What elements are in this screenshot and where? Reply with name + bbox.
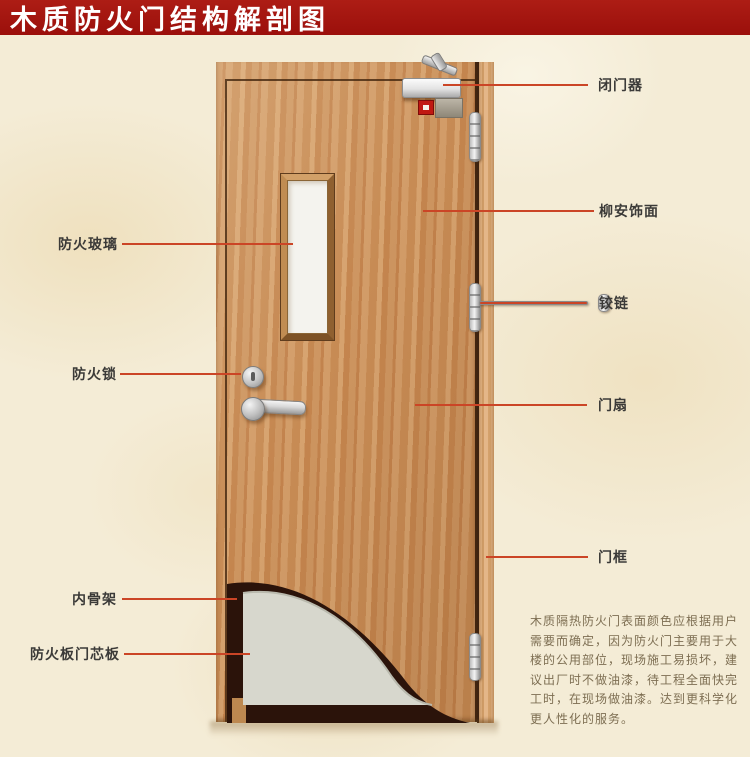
cutaway-section (216, 560, 478, 723)
title-banner: 木质防火门结构解剖图 (0, 0, 750, 35)
label-fire-board-core: 防火板门芯板 (20, 646, 120, 662)
red-label-plate-center (423, 105, 429, 110)
description-line: 楼的公用部位，现场施工易损坏，建 (530, 651, 748, 671)
description-line: 更人性化的服务。 (530, 710, 748, 730)
description-line: 需要而确定，因为防火门主要用于大 (530, 632, 748, 652)
label-door-leaf: 门扇 (598, 397, 628, 413)
door-handle-rosette (241, 397, 265, 421)
callout-line-lauan-veneer (423, 210, 594, 212)
door-shadow (210, 721, 498, 736)
hinge-middle (469, 283, 481, 332)
callout-line-fire-board-core (124, 653, 250, 655)
gray-label-plate (435, 98, 463, 118)
callout-line-door-closer (443, 84, 588, 86)
fire-door-diagram: 木质防火门结构解剖图 防火玻璃 防火锁 内骨架 防火板 (0, 0, 750, 757)
callout-line-inner-skeleton (122, 598, 237, 600)
door-frame (477, 62, 494, 723)
label-fire-lock: 防火锁 (17, 366, 117, 382)
callout-line-door-frame (486, 556, 588, 558)
description-paragraph: 木质隔热防火门表面颜色应根据用户 需要而确定，因为防火门主要用于大 楼的公用部位… (530, 612, 748, 729)
callout-line-fire-glass (122, 243, 293, 245)
keyhole-icon (251, 372, 255, 381)
description-line: 工时，在现场做油漆。达到更科学化 (530, 690, 748, 710)
label-lauan-veneer: 柳安饰面 (599, 203, 659, 219)
label-fire-glass: 防火玻璃 (18, 236, 118, 252)
label-hinge: 铰链 (598, 294, 610, 312)
red-label-plate (418, 100, 434, 115)
description-line: 议出厂时不做油漆，待工程全面快完 (530, 671, 748, 691)
page-title: 木质防火门结构解剖图 (0, 0, 330, 37)
callout-line-hinge (479, 301, 588, 305)
door-closer-body (402, 78, 461, 98)
fire-glass-window (281, 174, 334, 340)
callout-line-door-leaf (415, 404, 587, 406)
description-line: 木质隔热防火门表面颜色应根据用户 (530, 612, 748, 632)
label-inner-skeleton: 内骨架 (17, 591, 117, 607)
label-door-frame: 门框 (598, 549, 628, 565)
callout-line-fire-lock (120, 373, 241, 375)
fire-lock-cylinder (242, 366, 264, 388)
label-door-closer: 闭门器 (598, 77, 643, 93)
hinge-top (469, 112, 481, 162)
